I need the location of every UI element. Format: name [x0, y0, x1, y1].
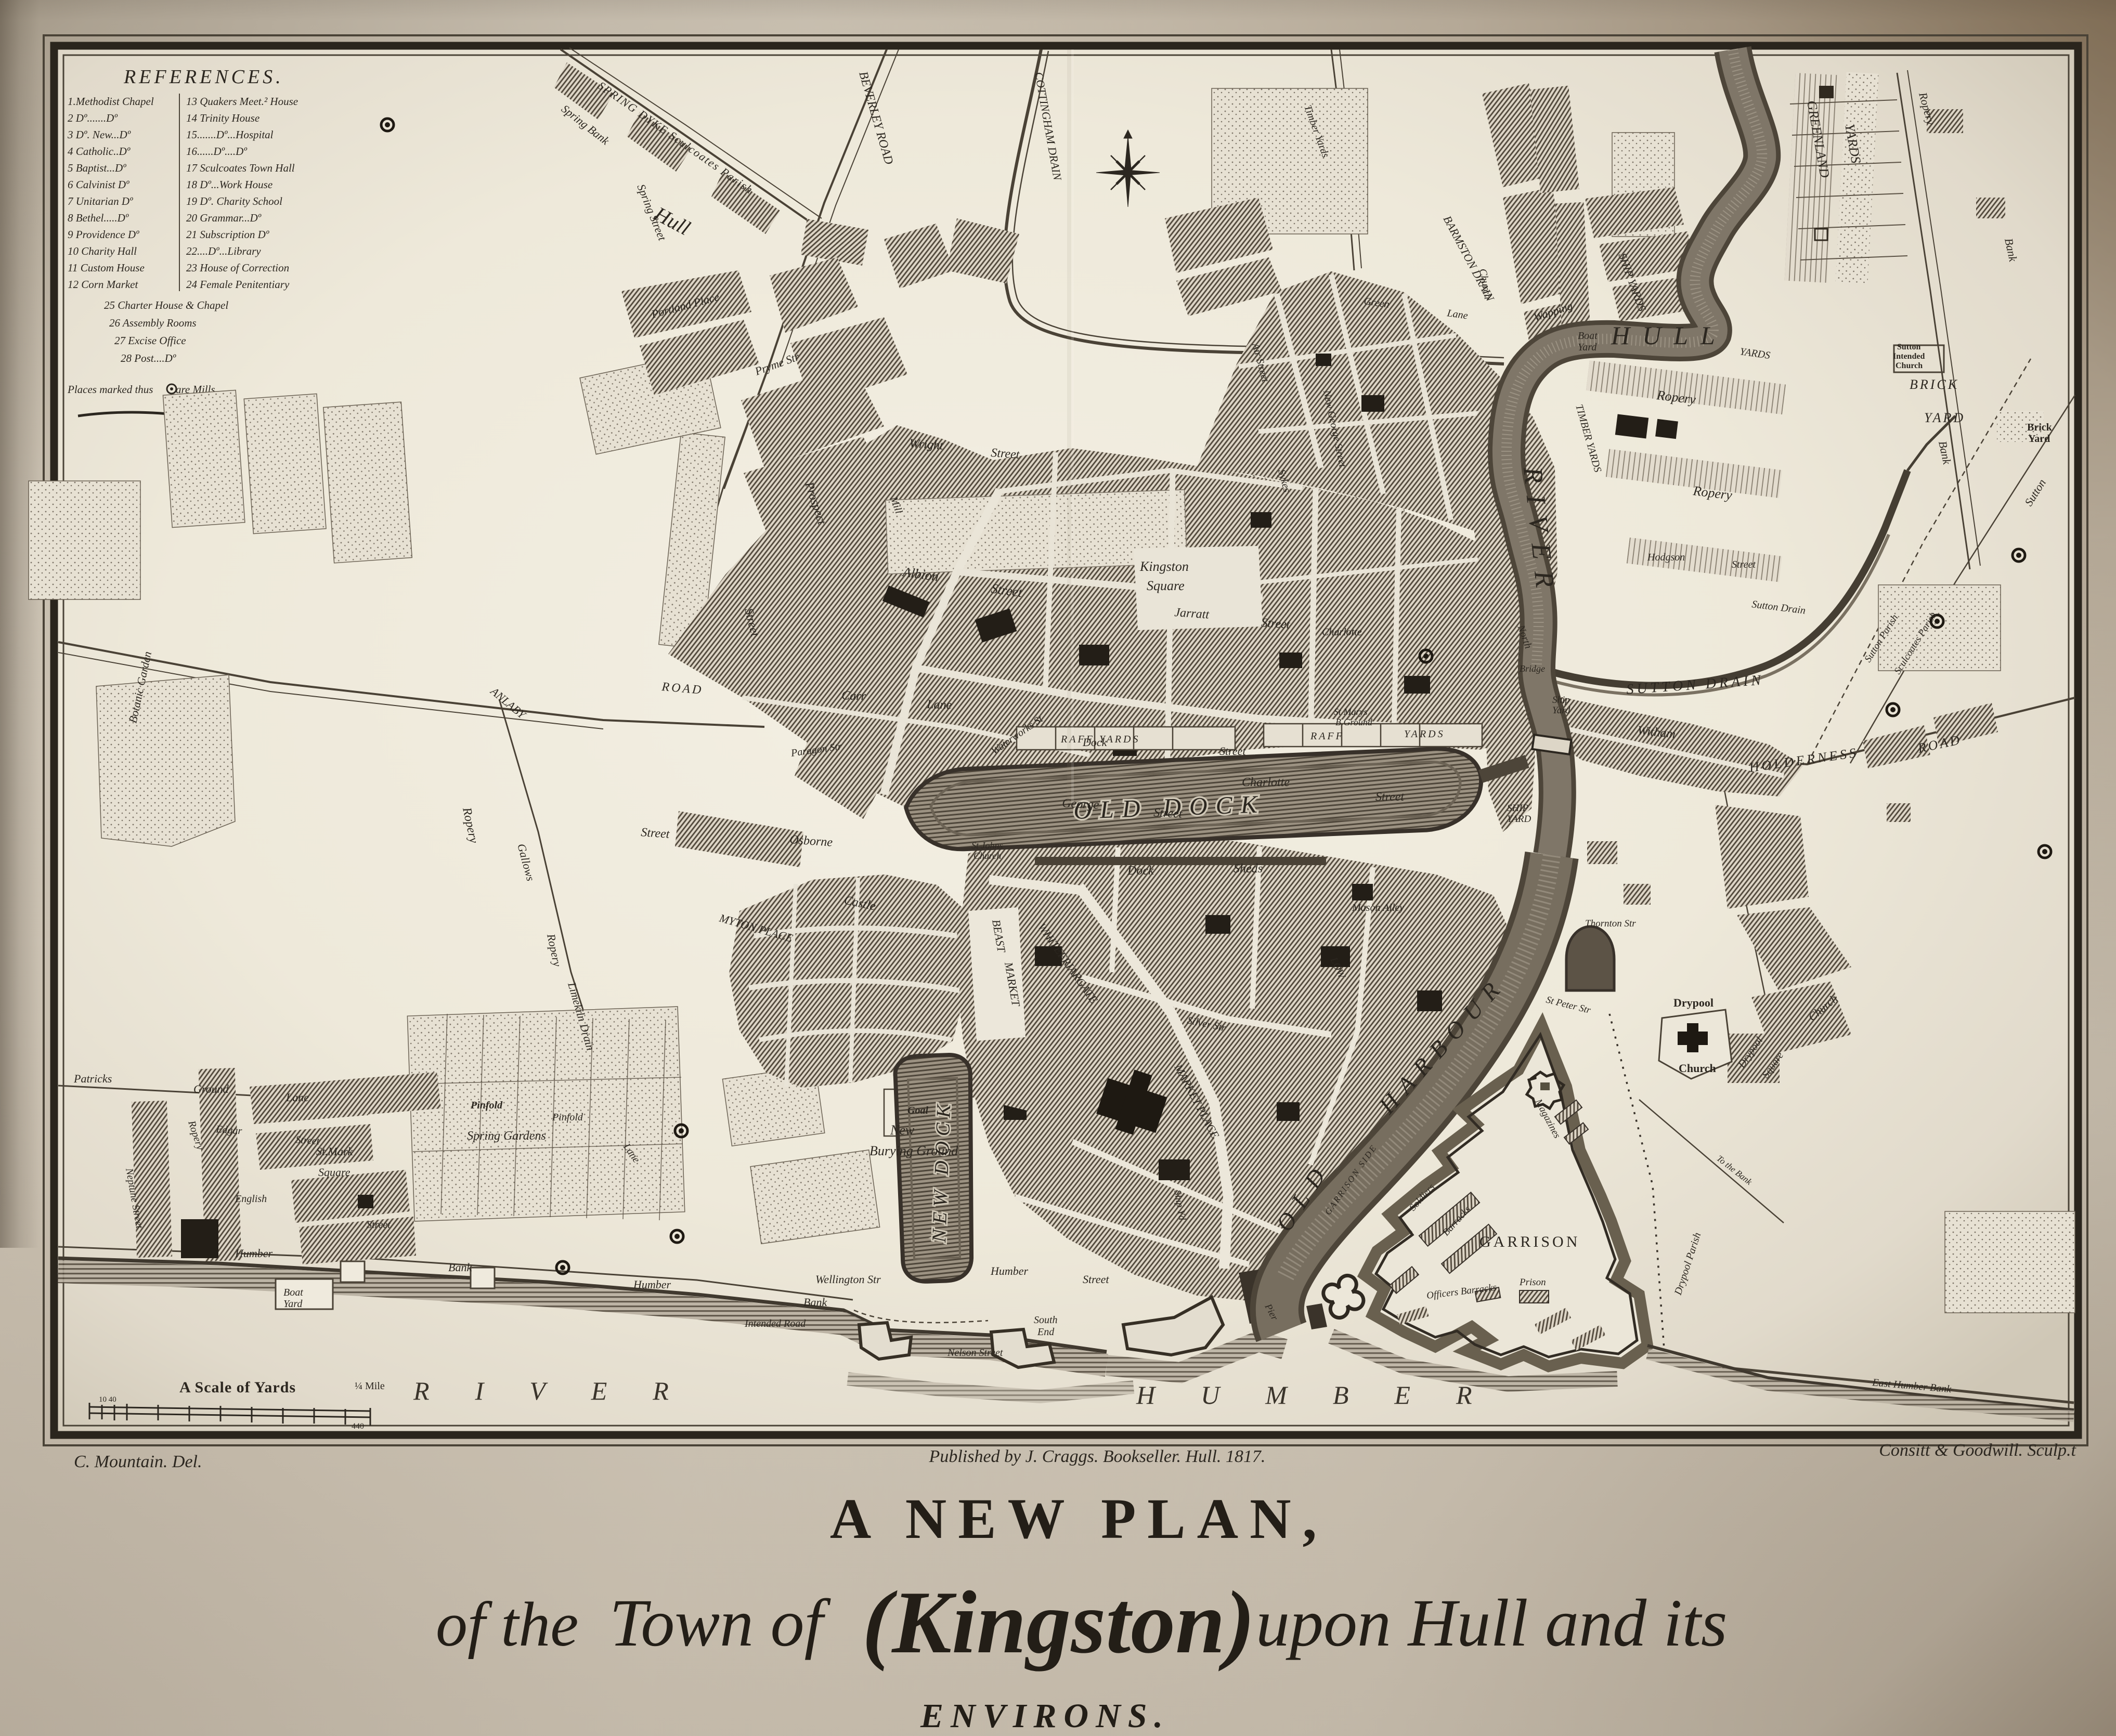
svg-text:Street: Street: [295, 1134, 320, 1147]
svg-text:St Johns: St Johns: [971, 840, 1003, 851]
svg-text:16......Dº....Dº: 16......Dº....Dº: [186, 145, 247, 158]
svg-text:Carr: Carr: [841, 689, 866, 703]
svg-text:Brick: Brick: [2027, 422, 2053, 433]
svg-text:South: South: [1034, 1314, 1058, 1326]
svg-text:2 Dº.......Dº: 2 Dº.......Dº: [68, 112, 118, 124]
svg-text:BRICK: BRICK: [1910, 377, 1959, 392]
svg-text:21 Subscription Dº: 21 Subscription Dº: [186, 228, 269, 241]
svg-text:Dock: Dock: [1127, 864, 1154, 878]
svg-text:25 Charter House & Chapel: 25 Charter House & Chapel: [104, 299, 228, 311]
svg-text:A Scale of Yards: A Scale of Yards: [179, 1379, 296, 1396]
svg-text:Burying Ground: Burying Ground: [869, 1143, 958, 1158]
svg-text:4 Catholic..Dº: 4 Catholic..Dº: [68, 145, 131, 158]
svg-text:440: 440: [352, 1422, 364, 1431]
svg-text:Humber: Humber: [633, 1278, 671, 1291]
svg-text:Lane: Lane: [285, 1091, 309, 1104]
svg-text:Street: Street: [991, 446, 1021, 462]
svg-text:Town of: Town of: [609, 1586, 832, 1661]
svg-text:7 Unitarian Dº: 7 Unitarian Dº: [68, 195, 133, 207]
svg-text:Yard: Yard: [2028, 433, 2050, 445]
svg-text:24 Female Penitentiary: 24 Female Penitentiary: [186, 278, 290, 291]
svg-text:Church: Church: [1679, 1062, 1716, 1075]
svg-text:Hodgson: Hodgson: [1647, 552, 1685, 563]
svg-text:YARDS: YARDS: [1404, 728, 1445, 740]
svg-text:Goal: Goal: [907, 1105, 928, 1116]
svg-text:Charlotte: Charlotte: [1242, 776, 1290, 789]
svg-text:Boat: Boat: [283, 1287, 303, 1298]
svg-text:Ship: Ship: [1552, 695, 1570, 706]
svg-text:20 Grammar...Dº: 20 Grammar...Dº: [186, 212, 262, 224]
svg-text:Intended Road: Intended Road: [744, 1318, 806, 1329]
svg-text:RAFF: RAFF: [1310, 730, 1344, 742]
svg-text:St.Mark: St.Mark: [316, 1145, 354, 1158]
svg-text:B.Ground: B.Ground: [1335, 717, 1373, 727]
svg-text:Street: Street: [1375, 790, 1405, 804]
svg-text:Square: Square: [1147, 578, 1185, 593]
svg-text:3 Dº. New...Dº: 3 Dº. New...Dº: [67, 128, 131, 141]
svg-text:11 Custom House: 11 Custom House: [68, 262, 145, 274]
svg-text:Humber: Humber: [235, 1247, 273, 1260]
svg-text:8 Bethel.....Dº: 8 Bethel.....Dº: [68, 212, 129, 224]
svg-text:YARD: YARD: [1924, 410, 1965, 425]
svg-text:10 Charity Hall: 10 Charity Hall: [68, 245, 137, 257]
svg-text:26 Assembly Rooms: 26 Assembly Rooms: [109, 317, 197, 329]
svg-text:Thornton Str: Thornton Str: [1585, 918, 1636, 929]
svg-text:Street: Street: [1153, 806, 1184, 821]
svg-text:New: New: [890, 1122, 915, 1138]
svg-text:Church: Church: [973, 851, 1001, 861]
svg-text:Bridge: Bridge: [1520, 663, 1545, 674]
svg-text:A NEW PLAN,: A NEW PLAN,: [830, 1487, 1328, 1550]
svg-text:Church: Church: [1896, 361, 1923, 370]
svg-text:17 Sculcoates Town Hall: 17 Sculcoates Town Hall: [186, 162, 295, 174]
svg-text:Humber: Humber: [990, 1264, 1029, 1277]
svg-text:Bank: Bank: [803, 1296, 827, 1309]
svg-text:Wellington Str: Wellington Str: [815, 1273, 881, 1286]
svg-text:Street: Street: [1083, 1273, 1109, 1286]
svg-text:Nelson Street: Nelson Street: [947, 1347, 1003, 1359]
svg-text:(Kingston): (Kingston): [862, 1573, 1255, 1672]
svg-text:Bank: Bank: [448, 1261, 472, 1274]
svg-text:Yard: Yard: [283, 1298, 303, 1310]
svg-text:18 Dº...Work House: 18 Dº...Work House: [186, 178, 272, 191]
svg-text:RIVER: RIVER: [413, 1376, 715, 1405]
svg-text:YARD: YARD: [1507, 814, 1531, 825]
svg-text:Lane: Lane: [926, 698, 952, 712]
svg-text:Charlotte: Charlotte: [1322, 626, 1362, 638]
svg-text:End: End: [1037, 1326, 1055, 1338]
svg-text:Street: Street: [641, 826, 671, 841]
svg-text:Spring Gardens: Spring Gardens: [467, 1129, 546, 1143]
svg-text:9 Providence Dº: 9 Providence Dº: [68, 228, 139, 241]
svg-text:13 Quakers Meet.² House: 13 Quakers Meet.² House: [186, 95, 298, 108]
svg-text:Street: Street: [1219, 745, 1246, 758]
svg-text:22....Dº...Library: 22....Dº...Library: [186, 245, 261, 257]
svg-text:Patricks: Patricks: [73, 1072, 112, 1085]
svg-text:Places marked thus: Places marked thus: [67, 383, 153, 396]
svg-text:27 Excise Office: 27 Excise Office: [114, 334, 186, 347]
svg-text:Consitt & Goodwill. Sculp.t: Consitt & Goodwill. Sculp.t: [1879, 1441, 2076, 1460]
svg-text:¼ Mile: ¼ Mile: [355, 1380, 385, 1392]
svg-text:Street: Street: [1261, 616, 1291, 632]
svg-text:Edgar: Edgar: [215, 1124, 243, 1137]
svg-text:HULL: HULL: [1611, 321, 1728, 350]
svg-text:12 Corn Market: 12 Corn Market: [68, 278, 138, 291]
svg-text:Pinfold: Pinfold: [552, 1112, 583, 1123]
svg-text:Pinfold: Pinfold: [470, 1100, 503, 1111]
svg-text:Street: Street: [1732, 559, 1756, 570]
svg-text:HUMBER: HUMBER: [1136, 1380, 1518, 1409]
svg-text:GARRISON: GARRISON: [1479, 1233, 1580, 1250]
svg-text:Kingston: Kingston: [1139, 559, 1189, 574]
svg-text:28 Post....Dº: 28 Post....Dº: [121, 352, 176, 364]
svg-text:Boat: Boat: [1578, 330, 1598, 342]
svg-text:10 40: 10 40: [99, 1395, 116, 1404]
svg-text:1.Methodist Chapel: 1.Methodist Chapel: [68, 95, 154, 108]
svg-text:Prison: Prison: [1519, 1277, 1546, 1288]
svg-text:of the: of the: [436, 1589, 578, 1660]
svg-text:Drypool: Drypool: [1673, 996, 1713, 1009]
svg-text:St Marys: St Marys: [1334, 707, 1368, 717]
svg-text:C. Mountain. Del.: C. Mountain. Del.: [74, 1452, 202, 1471]
svg-text:5 Baptist...Dº: 5 Baptist...Dº: [68, 162, 126, 174]
svg-text:Jarratt: Jarratt: [1174, 606, 1211, 622]
svg-text:Published by J. Craggs. Bookse: Published by J. Craggs. Bookseller. Hull…: [929, 1447, 1266, 1466]
svg-text:upon Hull and its: upon Hull and its: [1256, 1586, 1727, 1661]
svg-text:REFERENCES.: REFERENCES.: [123, 66, 284, 88]
svg-text:Ground: Ground: [193, 1082, 229, 1095]
svg-text:6 Calvinist Dº: 6 Calvinist Dº: [68, 178, 129, 191]
svg-text:Yard: Yard: [1552, 705, 1570, 716]
svg-text:English: English: [235, 1193, 267, 1205]
svg-text:Square: Square: [318, 1166, 350, 1179]
svg-text:Yard: Yard: [1578, 342, 1597, 353]
svg-text:ENVIRONS.: ENVIRONS.: [920, 1697, 1170, 1735]
svg-text:SHIP: SHIP: [1507, 803, 1529, 814]
svg-text:23 House of Correction: 23 House of Correction: [186, 262, 289, 274]
svg-text:Mason Alley: Mason Alley: [1352, 902, 1404, 913]
svg-text:15.......Dº...Hospital: 15.......Dº...Hospital: [186, 128, 274, 141]
svg-text:14 Trinity House: 14 Trinity House: [186, 112, 259, 124]
svg-text:Wright: Wright: [909, 437, 944, 453]
svg-text:Sheds: Sheds: [1234, 862, 1263, 876]
svg-text:Street: Street: [367, 1219, 391, 1231]
svg-text:Sutton: Sutton: [1897, 343, 1920, 351]
svg-text:19 Dº. Charity School: 19 Dº. Charity School: [186, 195, 282, 207]
svg-text:Intended: Intended: [1893, 352, 1925, 361]
